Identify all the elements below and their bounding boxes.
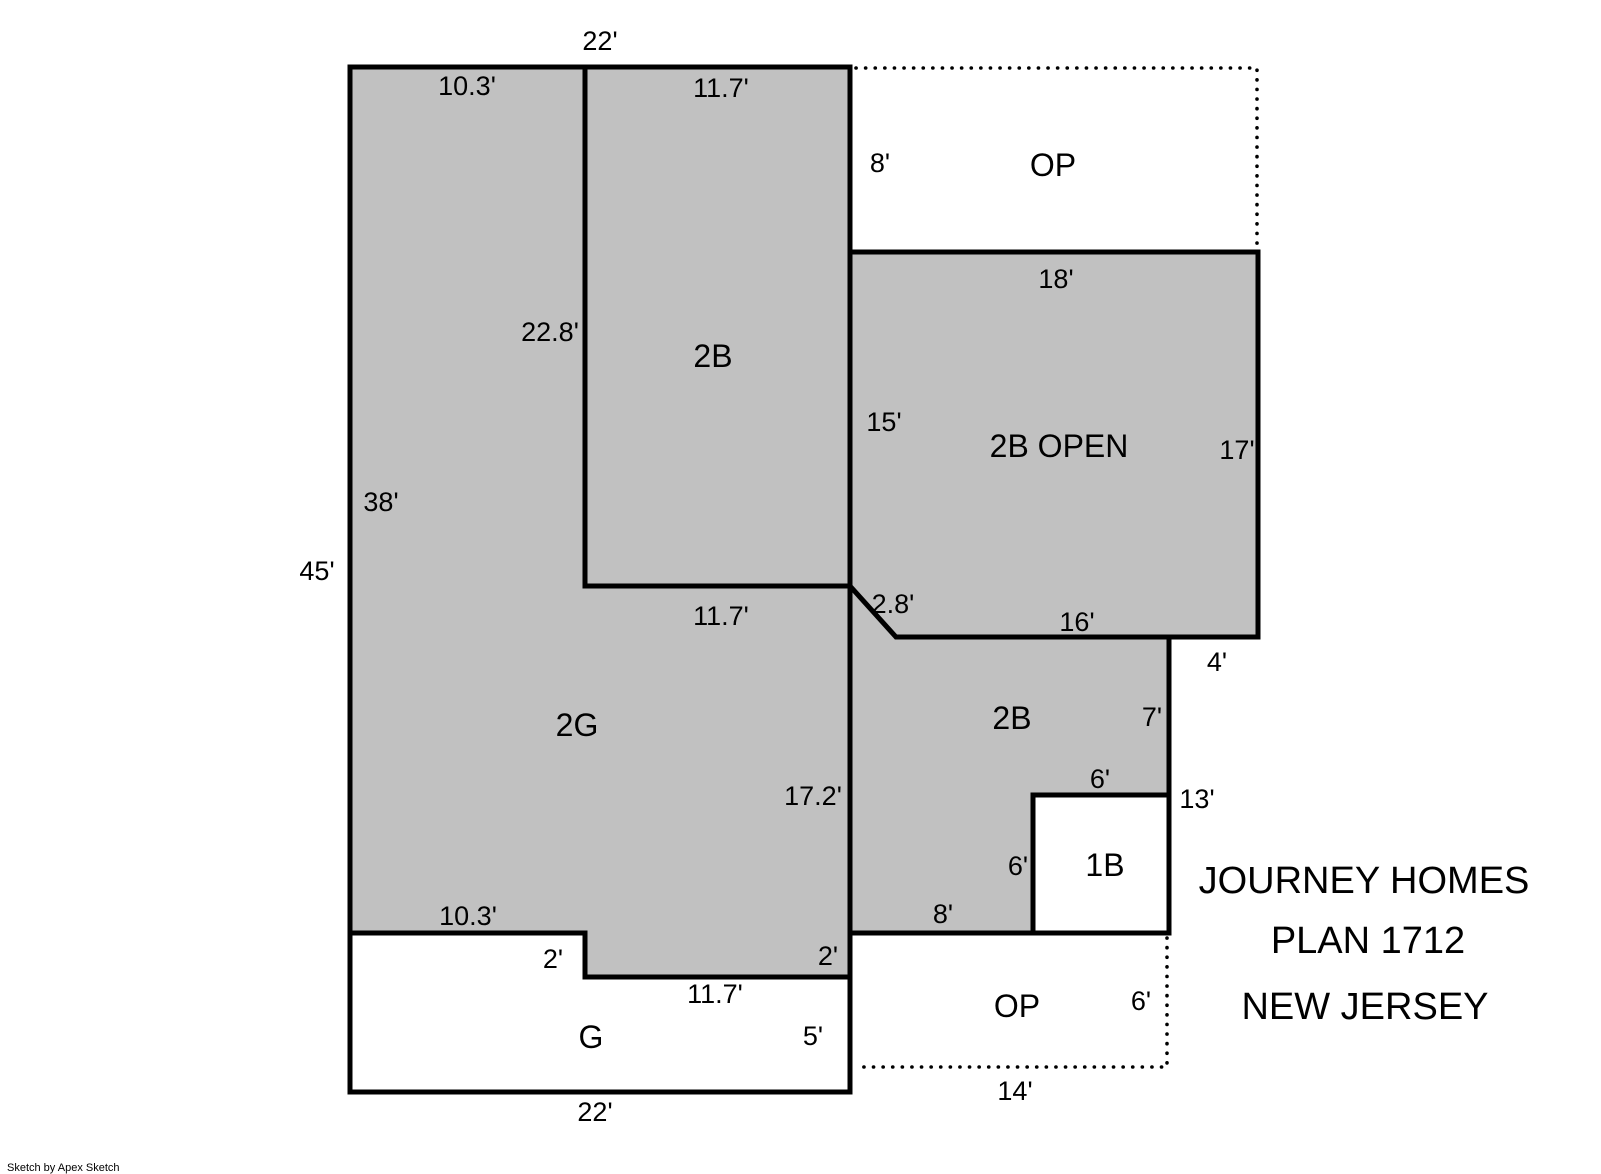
dim-right-lower-height: 13' (1179, 784, 1214, 814)
dim-garage-right-height: 5' (803, 1021, 823, 1051)
room-label-porch-lower: OP (994, 988, 1040, 1024)
dim-left-total-height: 45' (299, 556, 334, 586)
dim-diagonal-wall: 2.8' (872, 589, 915, 619)
dim-porch-lower-bottom-width: 14' (997, 1076, 1032, 1106)
dim-garage-top-left-width: 10.3' (439, 901, 497, 931)
dim-top-left-segment: 10.3' (438, 71, 496, 101)
dim-open-area-top-width: 18' (1038, 264, 1073, 294)
title-line-2: PLAN 1712 (1271, 920, 1465, 962)
dim-garage-step-left: 2' (543, 944, 563, 974)
title-line-1: JOURNEY HOMES (1199, 860, 1530, 902)
dim-bedroom-upper-bottom-width: 11.7' (693, 601, 749, 631)
watermark-text: Sketch by Apex Sketch (7, 1162, 120, 1174)
dim-bedroom-lower-bottom-width: 8' (933, 899, 953, 929)
room-label-porch-upper: OP (1030, 147, 1076, 183)
dim-bath-left-height: 6' (1008, 851, 1028, 881)
title-line-3: NEW JERSEY (1241, 986, 1488, 1028)
room-label-bedroom-upper: 2B (693, 338, 732, 374)
dim-garage-top-right-width: 11.7' (687, 979, 743, 1009)
dim-top-right-segment: 11.7' (693, 73, 749, 103)
dim-right-notch-width: 4' (1207, 647, 1227, 677)
dim-bath-top-width: 6' (1090, 764, 1110, 794)
dim-porch-upper-left-height: 8' (870, 148, 890, 178)
dim-right-mid-height: 7' (1142, 702, 1162, 732)
floorplan-drawing: 22' 10.3' 11.7' 8' 18' 22.8' 15' 17' 38'… (0, 0, 1601, 1174)
room-label-open-area: 2B OPEN (990, 428, 1129, 464)
dim-left-upper-height: 38' (363, 487, 398, 517)
dim-garage-bottom-width: 22' (577, 1097, 612, 1127)
room-label-garage-g: G (579, 1019, 604, 1055)
dim-garage-2g-right-height: 17.2' (784, 781, 842, 811)
dim-bedroom-upper-right-height: 15' (866, 407, 901, 437)
room-label-bedroom-lower: 2B (992, 700, 1031, 736)
room-label-bath-1b: 1B (1085, 847, 1124, 883)
building-footprint (350, 67, 1258, 977)
floorplan-sketch: 22' 10.3' 11.7' 8' 18' 22.8' 15' 17' 38'… (0, 0, 1601, 1174)
dim-garage-step-right: 2' (818, 941, 838, 971)
dim-open-area-right-height: 17' (1219, 435, 1254, 465)
dim-open-area-bottom-width: 16' (1059, 607, 1094, 637)
dim-bedroom-upper-left-height: 22.8' (521, 317, 579, 347)
dim-top-width: 22' (582, 26, 617, 56)
room-label-garage-2g: 2G (556, 707, 599, 743)
dim-porch-lower-right-height: 6' (1131, 986, 1151, 1016)
